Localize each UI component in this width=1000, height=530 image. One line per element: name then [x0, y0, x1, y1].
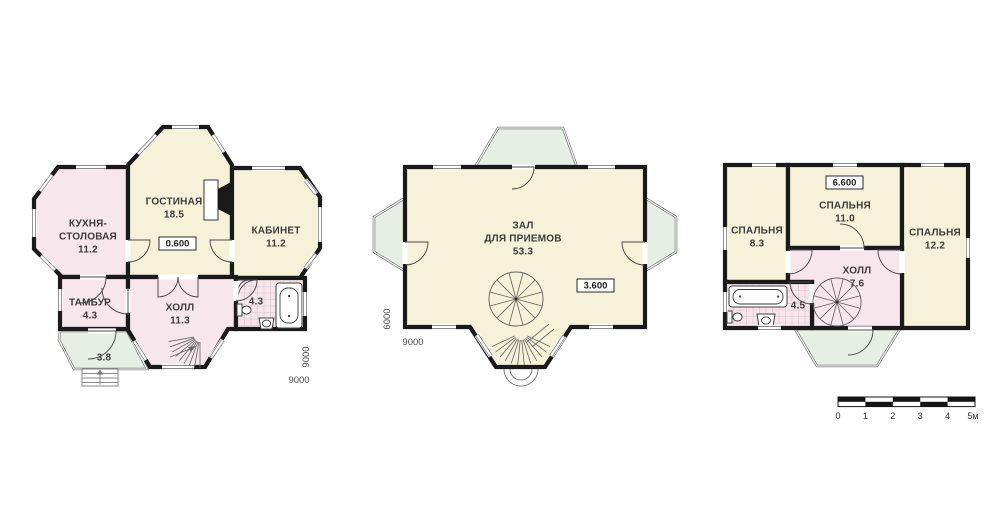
window	[758, 327, 781, 330]
window	[433, 166, 461, 169]
window	[432, 326, 456, 329]
elevation-label-3: 6.600	[833, 178, 857, 189]
room-area-tambour: 4.3	[83, 311, 98, 322]
room-label-living: ГОСТИНАЯ	[146, 197, 203, 208]
window	[967, 238, 970, 258]
floor-plan-2: ЗАЛ ДЛЯ ПРИЕМОВ 53.3 3.600 9000 6000	[374, 128, 676, 386]
dim-depth-2: 6000	[382, 308, 393, 329]
room-label-kitchen: КУХНЯ-	[69, 219, 107, 230]
dim-width-1: 9000	[288, 375, 309, 386]
floor-plan-1: КУХНЯ- СТОЛОВАЯ 11.2 ГОСТИНАЯ 18.5 0.600…	[33, 126, 322, 387]
window	[589, 326, 613, 329]
window	[76, 166, 106, 169]
bathtub-icon	[276, 283, 302, 328]
window	[172, 126, 199, 129]
balcony-area	[795, 329, 900, 366]
room-label-tambour: ТАМБУР	[69, 298, 111, 309]
porch-steps	[82, 369, 118, 386]
room-label-reception: ЗАЛ	[512, 221, 533, 232]
room-bedroom-1	[725, 165, 788, 282]
window	[921, 164, 944, 167]
scale-tick-1: 1	[863, 411, 868, 421]
scale-tick-3: 3	[918, 411, 923, 421]
bay-right	[645, 198, 676, 271]
scale-tick-5: 5м	[967, 411, 978, 421]
dim-width-2: 9000	[402, 337, 423, 348]
room-label-bedroom-3: СПАЛЬНЯ	[909, 228, 961, 239]
room-area-porch: 3.8	[97, 353, 112, 364]
sink-icon	[259, 318, 274, 329]
room-area-bedroom-1: 8.3	[750, 239, 765, 250]
scale-bar: 0 1 2 3 4 5м	[835, 397, 978, 421]
floor-plan-3: СПАЛЬНЯ 8.3 СПАЛЬНЯ 11.0 СПАЛЬНЯ 12.2 ХО…	[724, 164, 970, 367]
window	[752, 164, 776, 167]
bay-top	[475, 128, 577, 167]
room-area-bedroom-2: 11.0	[835, 214, 855, 225]
room-label-bedroom-1: СПАЛЬНЯ	[731, 226, 783, 237]
window	[33, 209, 36, 237]
bay-left	[374, 198, 405, 271]
window	[319, 207, 322, 242]
dim-depth-1: 9000	[301, 346, 312, 367]
sink-icon	[757, 314, 775, 327]
fireplace-icon	[204, 180, 233, 220]
room-area-hall-1: 11.3	[170, 316, 190, 327]
elevation-label-1: 0.600	[166, 239, 190, 250]
floor-plans-canvas: КУХНЯ- СТОЛОВАЯ 11.2 ГОСТИНАЯ 18.5 0.600…	[0, 0, 1000, 530]
room-label-study: КАБИНЕТ	[251, 226, 300, 237]
window	[304, 292, 307, 316]
scale-tick-0: 0	[835, 411, 840, 421]
room-label-reception-2: ДЛЯ ПРИЕМОВ	[484, 234, 561, 245]
room-area-bedroom-3: 12.2	[925, 241, 946, 252]
room-area-reception: 53.3	[513, 247, 534, 258]
room-label-hall-3: ХОЛЛ	[843, 266, 872, 277]
entry-steps	[504, 369, 538, 386]
room-label-hall-1: ХОЛЛ	[166, 303, 195, 314]
room-area-kitchen: 11.2	[78, 245, 98, 256]
window	[588, 166, 615, 169]
room-area-bath-1: 4.3	[249, 297, 264, 308]
elevation-label-2: 3.600	[584, 281, 608, 292]
room-area-living: 18.5	[164, 210, 185, 221]
room-area-hall-3: 7.6	[850, 279, 865, 290]
scale-tick-2: 2	[890, 411, 895, 421]
window	[833, 164, 857, 167]
room-label-bedroom-2: СПАЛЬНЯ	[819, 201, 871, 212]
bathtub-icon	[729, 286, 787, 307]
room-area-bath-3: 4.5	[791, 301, 806, 312]
scale-tick-4: 4	[945, 411, 950, 421]
room-area-study: 11.2	[266, 239, 286, 250]
window	[724, 292, 727, 312]
window	[59, 289, 62, 311]
room-reception-hall	[405, 167, 645, 367]
entry-steps-2	[510, 369, 532, 380]
room-label-kitchen-2: СТОЛОВАЯ	[59, 232, 117, 243]
window	[252, 167, 285, 170]
window	[724, 227, 727, 250]
